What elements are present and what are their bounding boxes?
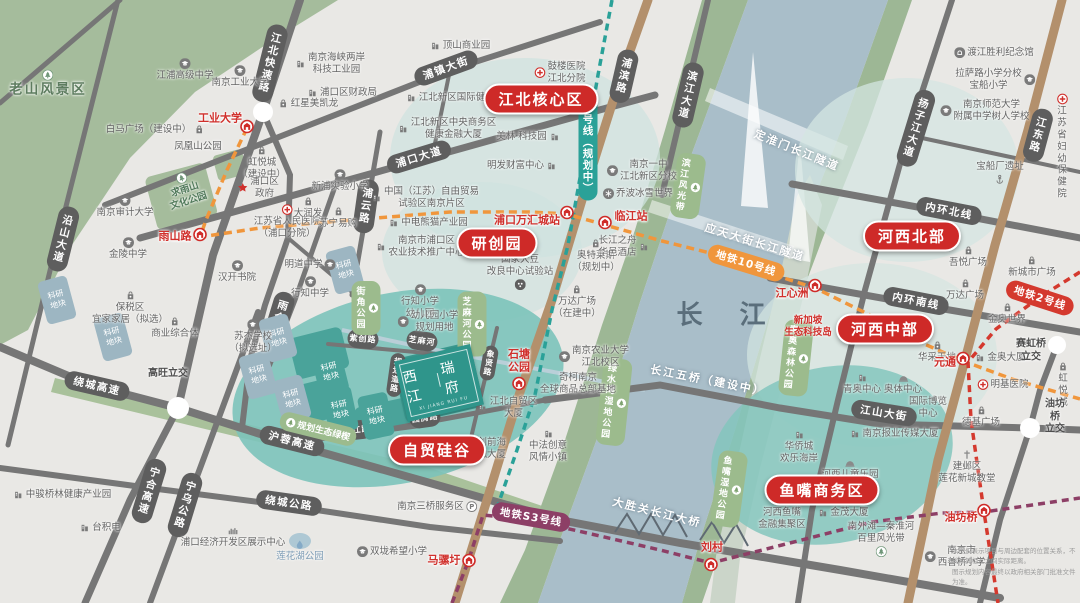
poi-text: 万达广场 — [946, 290, 984, 302]
star-icon — [237, 183, 248, 194]
map-labels: 科研 地块科研 地块科研 地块科研 地块科研 地块科研 地块科研 地块科研 地块… — [0, 0, 1080, 603]
bag-icon — [193, 125, 204, 136]
school-icon — [122, 237, 133, 248]
poi-label: 拉萨路小学分校 宝船小学 — [955, 68, 1035, 92]
school-icon — [179, 58, 190, 69]
district-badge: 自贸硅谷 — [388, 435, 486, 466]
poi-label: 青奥中心 — [843, 372, 881, 396]
bld-icon — [793, 429, 804, 440]
poi-text: 金茂大厦 — [830, 507, 868, 519]
metro-station-name: 江心洲 — [776, 288, 809, 301]
poi-text: 建邺区 莲花新城教堂 — [938, 461, 995, 485]
park-label: 绿水湾湿地公园 — [595, 357, 633, 447]
poi-label: 红星美凯龙 — [278, 98, 339, 110]
poi-text: 高旺立交 — [148, 368, 188, 381]
poi-text: 凤凰山公园 — [174, 141, 222, 153]
treew-icon — [731, 484, 742, 495]
poi-text: 浦口区财政局 — [320, 87, 377, 99]
poi-text: 赛虹桥 立交 — [1016, 339, 1046, 364]
poi-text: 河西鱼嘴 金融集聚区 — [758, 507, 806, 531]
poi-label: 中电熊猫产业园 — [388, 217, 468, 229]
bag-icon — [302, 196, 313, 207]
poi-label: 南京一中 江北新区分校 — [607, 159, 677, 183]
bag-icon — [169, 316, 180, 327]
school-icon — [325, 260, 336, 271]
poi-label: 浦口区 政府 — [237, 176, 279, 200]
bld-icon — [430, 41, 441, 52]
poi-label: 苏宁易购 — [319, 206, 357, 230]
poi-label: 奇柯南京 全球商品总部基地 — [540, 372, 616, 396]
location-map: P — [0, 0, 1080, 603]
poi-text: 南京市浦口区 农业技术推广中心 — [388, 235, 464, 259]
bag-icon — [962, 245, 973, 256]
poi-text: 江北新区中央商务区 健康金融大厦 — [411, 117, 497, 141]
poi-label: 新城市广场 — [1008, 255, 1056, 279]
poi-text: 行知中学 — [291, 288, 329, 300]
park-label-text: 街角公园 — [354, 286, 367, 330]
metro-icon — [598, 216, 612, 230]
poi-text: 求雨山 文化公园 — [165, 179, 208, 213]
skyline-icon — [227, 525, 238, 536]
metro-station — [808, 278, 822, 297]
road-label: 扬子江大道 — [894, 87, 937, 168]
poi-label: 宝船厂遗址 — [976, 161, 1024, 185]
poi-label: 江苏省 妇幼保健院 — [1053, 94, 1071, 201]
metro-station — [977, 503, 991, 522]
poi-label: 国际博览 中心 — [909, 396, 947, 420]
disclaimer-line2: 图示规划内容最终以政府相关部门批准文件为准。 — [952, 567, 1076, 588]
poi-text: 南京一中 江北新区分校 — [620, 159, 677, 183]
tree-icon — [875, 546, 886, 557]
poi-text: 南京海峡两岸 科技工业园 — [308, 52, 365, 76]
hosp-icon — [281, 204, 292, 215]
road-label: 江北快速路 — [250, 22, 289, 103]
poi-text: 南京农业大学 江北校区 — [572, 345, 629, 369]
school-icon — [357, 547, 368, 558]
poi-text: 中法创意 风情小镇 — [529, 440, 567, 464]
bld-icon — [371, 193, 382, 204]
poi-text: 奥体中心 — [884, 384, 922, 396]
school-icon — [940, 106, 951, 117]
poi-text: 新浦实验小学 — [311, 181, 368, 193]
district-badge: 研创园 — [456, 228, 537, 259]
poi-label: 白马广场（建设中） — [106, 124, 205, 136]
poi-text: 红星美凯龙 — [291, 98, 339, 110]
metro-station — [704, 557, 718, 576]
poi-label: 新加坡 生态科技岛 — [784, 315, 832, 339]
bld-icon — [13, 490, 24, 501]
district-badge: 河西中部 — [836, 314, 934, 345]
poi-label: 南京师范大学 附属中学树人学校 — [940, 99, 1029, 123]
poi-label: 中国（江苏）自由贸易 试验区南京片区 — [371, 186, 479, 210]
school-icon — [119, 195, 130, 206]
road-label: 内环南线 — [882, 285, 950, 316]
poi-label: 金奥世界 — [988, 302, 1026, 326]
tree-icon — [43, 70, 54, 81]
bag-icon — [975, 405, 986, 416]
treew-icon — [475, 319, 485, 329]
metro-icon — [956, 352, 970, 366]
poi-text: 长江之舟 华邑酒店 — [598, 235, 636, 259]
metro-station — [956, 351, 970, 370]
poi-text: 万达广场 （在建中） — [553, 296, 601, 320]
poi-text: 明道中学 — [284, 259, 322, 271]
metro-icon — [512, 377, 526, 391]
poi-label: 浦口经济开发区展示中心 — [181, 525, 286, 549]
poi-text: 新加坡 生态科技岛 — [784, 315, 832, 339]
museum-icon — [954, 48, 965, 59]
poi-text: 商业综合体 — [151, 328, 199, 340]
poi-text: 苏宁易购 — [319, 218, 357, 230]
drop-icon — [294, 539, 305, 550]
school-icon — [231, 260, 242, 271]
poi-text: 油坊桥 立交 — [1043, 398, 1068, 436]
district-badge: 江北核心区 — [483, 84, 598, 115]
poi-label: 莲花湖公园 — [276, 539, 324, 563]
poi-label: 顶山商业园 — [430, 40, 491, 52]
church-icon — [961, 449, 972, 460]
bag-icon — [1058, 361, 1069, 372]
school-icon — [247, 319, 258, 330]
poi-label: 金陵中学 — [109, 237, 147, 261]
poi-label: 苏杰学校 （拟选址） — [229, 319, 277, 355]
metro-station-name: 工业大学 — [198, 113, 242, 126]
dome-icon — [844, 457, 855, 468]
bag-icon — [959, 278, 970, 289]
metro-icon — [560, 206, 574, 220]
poi-label: 乔波冰雪世界 — [603, 188, 673, 200]
poi-text: 江苏省 妇幼保健院 — [1053, 106, 1071, 201]
poi-text: 浦口区 政府 — [250, 176, 279, 200]
school-icon — [334, 169, 345, 180]
poi-text: 德基广场 — [962, 417, 1000, 429]
metro-station — [240, 119, 254, 138]
poi-label: 双垅希望小学 — [357, 546, 427, 558]
poi-text: 江浦高级中学 — [156, 70, 213, 82]
metro-station-name: 临江站 — [615, 211, 648, 224]
poi-text: 汉开书院 — [218, 272, 256, 284]
metro-station — [560, 205, 574, 224]
poi-text: 台积电 — [92, 522, 121, 534]
bld-icon — [307, 88, 318, 99]
poi-label: 台积电 — [79, 522, 121, 534]
district-badge: 河西北部 — [863, 221, 961, 252]
poi-text: 南京审计大学 — [96, 207, 153, 219]
bag-icon — [571, 284, 582, 295]
poi-text: 幼儿园小学 规划用地 — [411, 310, 459, 334]
poi-label: 万达广场 （在建中） — [553, 284, 601, 320]
poi-text: 明发财富中心 — [487, 160, 544, 172]
poi-text: 南京师范大学 附属中学树人学校 — [953, 99, 1029, 123]
bridge-tunnel-label: 定淮门长江隧道 — [752, 126, 842, 175]
poi-label: 大润发 — [294, 196, 323, 220]
poi-label: 高旺立交 — [148, 368, 188, 381]
metro-station-name: 雨山路 — [159, 231, 192, 244]
bld-icon — [549, 132, 560, 143]
poi-text: 南京报业传媒大厦 — [862, 428, 938, 440]
poi-text: 中国（江苏）自由贸易 试验区南京片区 — [384, 186, 479, 210]
district-badge: 鱼嘴商务区 — [764, 475, 879, 506]
poi-label: 南京海峡两岸 科技工业园 — [295, 52, 365, 76]
poi-label: 南京审计大学 — [96, 195, 153, 219]
school-icon — [304, 276, 315, 287]
bag-icon — [931, 340, 942, 351]
metro-station — [462, 553, 476, 572]
dots-icon — [514, 279, 525, 290]
bld-icon — [849, 429, 860, 440]
disclaimer-line1: 本图仅表示项目与周边配套的位置关系，不反映其相互之间实际距离。 — [952, 546, 1076, 567]
research-parcel: 科研 地块 — [37, 275, 77, 325]
metro-icon — [193, 228, 207, 242]
poi-label: 南京报业传媒大厦 — [849, 428, 938, 440]
treew-icon — [690, 181, 701, 192]
poi-text: 乔波冰雪世界 — [616, 188, 673, 200]
poi-text: 金陵中学 — [109, 249, 147, 261]
poi-text: 中电熊猫产业园 — [401, 217, 468, 229]
metro-station-name: 元通 — [934, 357, 956, 370]
poi-label: 明基医院 — [977, 379, 1028, 391]
poi-text: 渡江胜利纪念馆 — [967, 47, 1034, 59]
project-name-part1: 西江 — [401, 361, 439, 407]
metro-station-name: 油坊桥 — [945, 512, 978, 525]
poi-text: 奇柯南京 全球商品总部基地 — [540, 372, 616, 396]
park-label: 街角公园 — [352, 281, 381, 335]
poi-label: 明发财富中心 — [487, 160, 557, 172]
poi-label: 吾悦广场 — [949, 245, 987, 269]
project-logo-frame: 西江 瑞府 XI JIANG RUI FU — [399, 349, 479, 417]
poi-text: 南外滩—秦淮河 百里风光带 — [848, 521, 915, 545]
poi-label: 长江之舟 华邑酒店 — [598, 235, 649, 259]
parkP-icon — [466, 502, 477, 513]
poi-label: 求雨山 文化公园 — [161, 167, 208, 213]
poi-label: 奥体中心 — [884, 372, 922, 396]
road-label: 滨江大道 — [670, 60, 705, 129]
road-label: 浦镇大街 — [412, 48, 481, 88]
poi-text: 拉萨路小学分校 宝船小学 — [955, 68, 1022, 92]
poi-text: 新城市广场 — [1008, 267, 1056, 279]
poi-text: 双垅希望小学 — [370, 546, 427, 558]
poi-label: 江北新区中央商务区 健康金融大厦 — [398, 117, 497, 141]
metro-icon — [240, 120, 254, 134]
school-icon — [1024, 75, 1035, 86]
poi-text: 江北自贸区 大厦 — [490, 396, 538, 420]
poi-text: 明基医院 — [990, 379, 1028, 391]
metro-station-name: 石塘 公园 — [508, 348, 530, 373]
bld-icon — [406, 93, 417, 104]
poi-label: 美林·科技园 — [496, 131, 560, 143]
poi-label: 幼儿园小学 规划用地 — [398, 310, 459, 334]
metro-icon — [462, 554, 476, 568]
poi-label: 金茂大厦 — [817, 507, 868, 519]
poi-text: 浦口经济开发区展示中心 — [181, 537, 286, 549]
poi-label: 南京工业大学 — [211, 65, 268, 89]
poi-label: 渡江胜利纪念馆 — [954, 47, 1034, 59]
poi-label: 德基广场 — [962, 405, 1000, 429]
poi-label: 行知中学 — [291, 276, 329, 300]
hosp-icon — [534, 68, 545, 79]
yangtze-river-label: 长 江 — [676, 295, 779, 332]
poi-label: 中法创意 风情小镇 — [529, 428, 567, 464]
bld-icon — [295, 59, 306, 70]
road-label: 江山大街 — [850, 398, 918, 427]
poi-text: 吾悦广场 — [949, 257, 987, 269]
school-icon — [559, 352, 570, 363]
poi-text: 中骏桥林健康产业园 — [26, 489, 112, 501]
metro-station — [512, 376, 526, 395]
poi-label: 南京市浦口区 农业技术推广中心 — [375, 235, 464, 259]
poi-label: 中骏桥林健康产业园 — [13, 489, 112, 501]
metro-icon — [977, 504, 991, 518]
poi-label: 商业综合体 — [151, 316, 199, 340]
bld-icon — [375, 242, 386, 253]
bld-icon — [974, 353, 985, 364]
park-label: 鱼嘴湿地公园 — [709, 449, 748, 528]
bag-icon — [256, 145, 267, 156]
bld-icon — [79, 523, 90, 534]
poi-label: 南外滩—秦淮河 百里风光带 — [848, 521, 915, 557]
bag-icon — [1026, 255, 1037, 266]
poi-text: 美林·科技园 — [496, 131, 547, 143]
metro-station-name: 浦口万汇城站 — [494, 215, 560, 228]
poi-text: 宝船厂遗址 — [976, 161, 1024, 173]
poi-label: 油坊桥 立交 — [1043, 398, 1068, 436]
bld-icon — [856, 372, 867, 383]
metro-icon — [808, 279, 822, 293]
bld-icon — [817, 508, 828, 519]
school-icon — [414, 284, 425, 295]
poi-label: 江北自贸区 大厦 — [477, 396, 538, 420]
treew-icon — [285, 416, 297, 428]
poi-text: 顶山商业园 — [443, 40, 491, 52]
poi-text: 白马广场（建设中） — [106, 124, 192, 136]
poi-text: 大润发 — [294, 208, 323, 220]
poi-label: 河西鱼嘴 金融集聚区 — [758, 507, 806, 531]
bag-icon — [278, 99, 289, 110]
poi-text: 青奥中心 — [843, 384, 881, 396]
school-icon — [925, 552, 936, 563]
metro-icon — [704, 558, 718, 572]
bag-icon — [124, 290, 135, 301]
poi-text: 南京工业大学 — [211, 77, 268, 89]
bld-icon — [546, 161, 557, 172]
bag-icon — [332, 206, 343, 217]
poi-label: 新浦实验小学 — [311, 169, 368, 193]
bld-icon — [398, 124, 409, 135]
treew-icon — [616, 397, 627, 408]
poi-text: 华侨城 欢乐海岸 — [780, 441, 818, 465]
road-label: 绕城高速 — [63, 369, 132, 402]
park-label-text: 芝麻河公园 — [460, 297, 473, 352]
hosp-icon — [977, 380, 988, 391]
poi-label: 赛虹桥 立交 — [1016, 339, 1046, 364]
dome-icon — [897, 372, 908, 383]
school-icon — [398, 317, 409, 328]
metro-station-name: 马骡圩 — [428, 555, 461, 568]
poi-label: 万达广场 — [946, 278, 984, 302]
road-label: 浦口大道 — [385, 138, 454, 175]
bag-icon — [1001, 302, 1012, 313]
metro-station — [193, 227, 207, 246]
school-icon — [234, 65, 245, 76]
hosp-icon — [1057, 94, 1068, 105]
logo-divider — [436, 373, 440, 387]
poi-text: 莲花湖公园 — [276, 551, 324, 563]
road-label: 绕城公路 — [255, 489, 323, 517]
bld-icon — [542, 428, 553, 439]
poi-label: 国家大豆 改良中心试验站 — [487, 254, 554, 290]
poi-label: 浦口区财政局 — [307, 87, 377, 99]
poi-label: 汉开书院 — [218, 260, 256, 284]
school-icon — [607, 166, 618, 177]
metro-station-name: 刘村 — [701, 542, 723, 555]
road-label: 宁合高速 — [129, 456, 168, 525]
map-disclaimer: 本图仅表示项目与周边配套的位置关系，不反映其相互之间实际距离。 图示规划内容最终… — [952, 546, 1076, 588]
bld-icon — [639, 242, 650, 253]
treew-icon — [798, 353, 809, 364]
metro-station — [598, 215, 612, 234]
bridge-tunnel-label: 大胜关长江大桥 — [611, 493, 703, 531]
bridge-tunnel-label: 长江五桥（建设中） — [649, 361, 767, 399]
poi-text: 南京三桥服务区 — [397, 501, 464, 513]
anchor-icon — [994, 174, 1005, 185]
poi-label: 南京农业大学 江北校区 — [559, 345, 629, 369]
poi-label: 华侨城 欢乐海岸 — [780, 429, 818, 465]
poi-label: 鼓楼医院 江北分院 — [534, 61, 585, 85]
metro-line-label: 地铁S3号线 — [491, 501, 572, 533]
poi-text: 苏杰学校 （拟选址） — [229, 331, 277, 355]
treew-icon — [369, 303, 379, 313]
poi-text: 老山风景区 — [9, 82, 87, 99]
poi-text: 国际博览 中心 — [909, 396, 947, 420]
poi-label: 明道中学 — [284, 259, 335, 271]
road-label: 沿山大道 — [45, 204, 81, 273]
poi-label: 凤凰山公园 — [174, 141, 222, 153]
project-name-part2: 瑞府 — [438, 352, 476, 398]
poi-text: 金奥世界 — [988, 314, 1026, 326]
poi-label: 建邺区 莲花新城教堂 — [938, 449, 995, 485]
poi-label: 江浦高级中学 — [156, 58, 213, 82]
poi-label: 老山风景区 — [9, 70, 87, 99]
poi-text: 鼓楼医院 江北分院 — [547, 61, 585, 85]
bld-icon — [388, 218, 399, 229]
snow-icon — [603, 189, 614, 200]
poi-label: 南京三桥服务区 — [397, 501, 477, 513]
road-label: 浦滨路 — [608, 48, 640, 105]
